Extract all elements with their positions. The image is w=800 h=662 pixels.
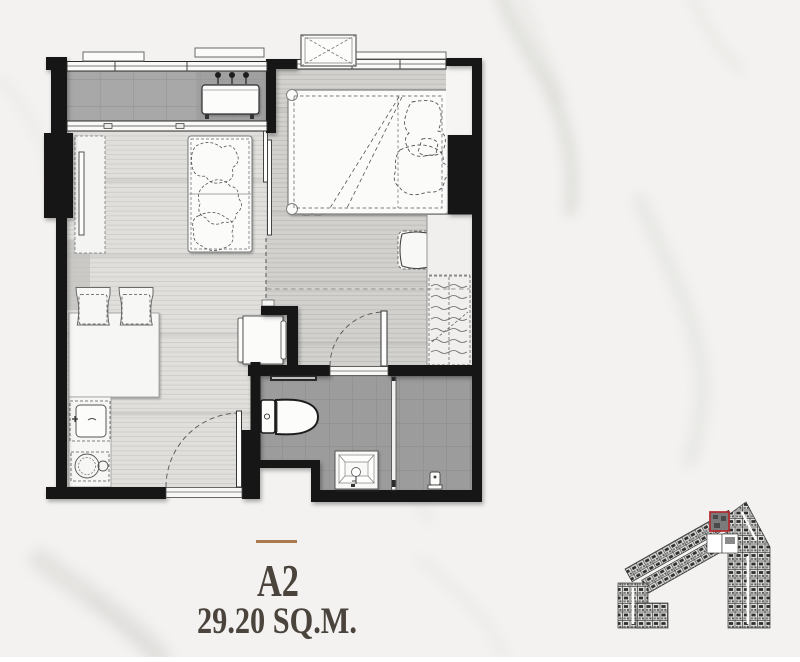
svg-text:A2: A2 [257,555,299,606]
svg-text:29.20 SQ.M.: 29.20 SQ.M. [197,601,357,642]
